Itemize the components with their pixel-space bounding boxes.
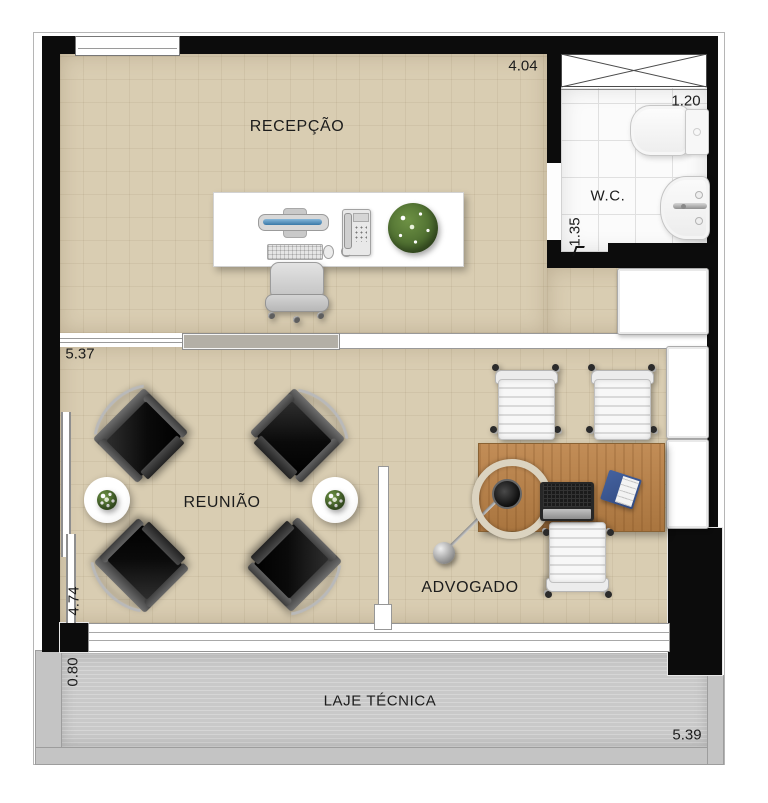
guest-chair [590, 366, 653, 440]
room-label-wc: W.C. [591, 188, 626, 205]
floor-plan: RECEPÇÃO W.C. REUNIÃO ADVOGADO LAJE TÉCN… [0, 0, 768, 803]
keyboard-icon [267, 244, 323, 260]
wall-wc-bottom-step [608, 243, 708, 252]
mouse-icon [323, 245, 334, 259]
dim-laje-depth: 0.80 [65, 657, 82, 686]
room-label-laje-tecnica: LAJE TÉCNICA [324, 693, 437, 710]
side-table [84, 477, 130, 523]
dim-laje-width: 5.39 [672, 727, 701, 744]
toilet-cistern-icon [685, 109, 709, 155]
cabinet-right-lower [666, 439, 709, 529]
desk-plant-icon [388, 203, 438, 253]
reception-chair [262, 262, 330, 324]
laje-wall-right [707, 675, 724, 765]
laptop-icon [540, 482, 594, 521]
wc-door-opening [547, 163, 561, 240]
dim-reuniao-width: 5.37 [65, 346, 94, 363]
dim-recepcao-width: 4.04 [508, 58, 537, 75]
toilet-icon [630, 105, 690, 156]
arc-lamp-base [433, 542, 455, 564]
sink-icon [660, 176, 710, 240]
dim-reuniao-depth: 4.74 [66, 586, 83, 615]
column-bottom-right [668, 528, 722, 675]
side-table [312, 477, 358, 523]
sliding-door [183, 334, 339, 349]
cabinet-below-wc [617, 268, 709, 335]
column-bottom-left [60, 623, 88, 652]
telephone-icon [342, 209, 371, 256]
entry-door [75, 36, 180, 56]
laje-wall-bottom [35, 747, 724, 765]
wall-wc-bottom [547, 252, 708, 268]
guest-chair [494, 366, 557, 440]
cabinet-right-upper [666, 346, 709, 439]
partition-wall-right [337, 333, 707, 349]
desk-chair [547, 522, 610, 596]
dim-wc-depth: 1.35 [567, 217, 584, 246]
duct-shaft [561, 54, 707, 90]
room-label-reuniao: REUNIÃO [183, 494, 260, 512]
monitor-icon [258, 214, 329, 231]
wall-wc-left-upper [547, 54, 561, 163]
room-divider-base [374, 604, 392, 630]
dim-wc-width: 1.20 [671, 93, 700, 110]
arc-lamp-bulb [492, 479, 522, 509]
room-label-advogado: ADVOGADO [421, 579, 518, 597]
room-label-recepcao: RECEPÇÃO [250, 118, 345, 136]
wall-left [42, 36, 60, 652]
